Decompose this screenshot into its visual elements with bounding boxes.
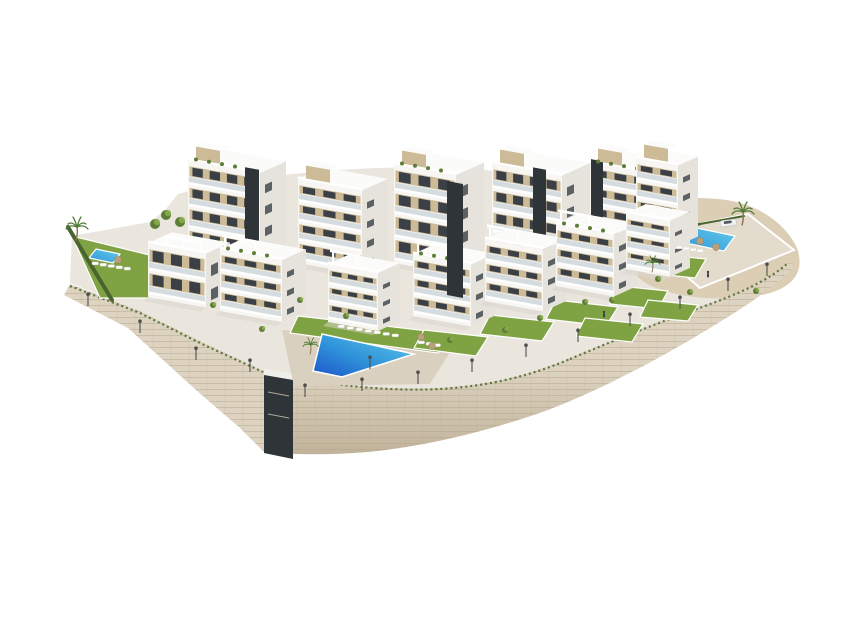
window xyxy=(399,195,411,207)
pedestrian xyxy=(707,271,709,278)
sun-lounger xyxy=(697,249,704,252)
roof-planter xyxy=(233,164,237,168)
sun-lounger xyxy=(347,327,354,330)
roof-planter xyxy=(575,224,579,228)
sun-lounger xyxy=(124,267,131,270)
palm-frond xyxy=(77,226,88,229)
roof-planter xyxy=(400,161,404,165)
parasol-canopy xyxy=(713,244,720,251)
lamp-head xyxy=(369,356,372,359)
roof-planter xyxy=(419,251,423,255)
pergola-post xyxy=(200,242,202,252)
window xyxy=(171,278,182,291)
window xyxy=(513,195,523,205)
lamp-head xyxy=(679,296,682,299)
roof-planter xyxy=(265,253,269,257)
apartment-building xyxy=(143,232,230,311)
window xyxy=(513,217,523,227)
pergola-post xyxy=(165,236,167,246)
window xyxy=(496,214,506,224)
sun-lounger xyxy=(92,262,99,265)
sun-lounger xyxy=(418,341,425,344)
lamp-head xyxy=(139,320,142,323)
apartment-building xyxy=(323,249,400,335)
window xyxy=(399,218,411,230)
apartment-building xyxy=(480,224,567,315)
lamp-head xyxy=(766,263,769,266)
parasol-canopy xyxy=(115,257,122,264)
apartment-building xyxy=(621,204,690,281)
architectural-rendering: Aerial 3D architectural rendering of a m… xyxy=(0,0,850,620)
pedestrian xyxy=(603,311,605,318)
shrub-highlight xyxy=(262,326,266,330)
sun-lounger xyxy=(690,248,697,251)
window xyxy=(189,281,200,294)
lamp-head xyxy=(727,278,730,281)
roof-planter xyxy=(194,157,198,161)
window xyxy=(153,251,164,264)
roof-planter xyxy=(426,166,430,170)
shrub-highlight xyxy=(300,297,304,301)
shrub-highlight xyxy=(690,289,694,293)
tree-highlight xyxy=(179,217,185,223)
roof-planter xyxy=(226,246,230,250)
lamp-head xyxy=(249,359,252,362)
shrub-highlight xyxy=(612,297,616,301)
pedestrian-body xyxy=(603,313,605,318)
window xyxy=(513,174,523,184)
pergola-post xyxy=(224,236,226,248)
pergola-post xyxy=(183,239,185,249)
central-elevator-shaft xyxy=(447,181,463,298)
shrub-highlight xyxy=(756,288,760,292)
pedestrian-head xyxy=(707,271,709,273)
window xyxy=(496,171,506,181)
roof-planter xyxy=(601,228,605,232)
pergola-post xyxy=(356,256,358,268)
lamp-head xyxy=(304,384,307,387)
sun-lounger xyxy=(676,246,683,249)
window xyxy=(419,222,431,234)
window xyxy=(547,180,557,190)
shrub-highlight xyxy=(213,302,217,306)
shrub-highlight xyxy=(450,337,454,341)
lamp-head xyxy=(417,371,420,374)
window xyxy=(419,175,431,187)
roof-planter xyxy=(596,159,600,163)
lamp-head xyxy=(195,347,198,350)
sun-lounger xyxy=(338,325,345,328)
lamp-head xyxy=(87,293,90,296)
window xyxy=(153,275,164,288)
sun-lounger xyxy=(365,330,372,333)
elevator-tower xyxy=(264,371,293,459)
pedestrian-head xyxy=(603,311,605,313)
pedestrian-body xyxy=(707,273,709,278)
shrub-highlight xyxy=(658,276,662,280)
render-canvas: Aerial 3D architectural rendering of a m… xyxy=(0,0,850,620)
pergola-post xyxy=(517,232,519,244)
window xyxy=(171,254,182,267)
pergola-post xyxy=(489,226,491,238)
roof-planter xyxy=(220,162,224,166)
window xyxy=(399,172,411,184)
apartment-building xyxy=(551,209,638,300)
lamp-head xyxy=(471,359,474,362)
roof-planter xyxy=(239,249,243,253)
window xyxy=(496,192,506,202)
window xyxy=(189,257,200,270)
sun-lounger xyxy=(100,263,107,266)
lamp-head xyxy=(629,313,632,316)
parasol-canopy xyxy=(418,334,425,341)
window xyxy=(547,223,557,233)
lamp-head xyxy=(361,378,364,381)
sun-lounger xyxy=(108,265,115,268)
shrub-highlight xyxy=(540,315,544,319)
lamp-head xyxy=(525,344,528,347)
tree-highlight xyxy=(154,219,160,225)
pergola-post xyxy=(560,211,562,223)
roof-planter xyxy=(439,168,443,172)
sun-lounger xyxy=(383,333,390,336)
window xyxy=(399,241,411,253)
roof-planter xyxy=(432,254,436,258)
tree-highlight xyxy=(165,210,171,216)
window xyxy=(419,198,431,210)
sun-lounger xyxy=(374,331,381,334)
roof-planter xyxy=(622,164,626,168)
palm-trunk xyxy=(76,227,77,240)
apartment-building xyxy=(215,234,306,326)
roof-planter xyxy=(588,226,592,230)
roof-planter xyxy=(252,251,256,255)
sun-lounger xyxy=(683,247,690,250)
shrub-highlight xyxy=(585,299,589,303)
roof-planter xyxy=(413,164,417,168)
parasol-canopy xyxy=(429,343,436,350)
sun-lounger xyxy=(356,328,363,331)
shrub-highlight xyxy=(346,313,350,317)
shrub-highlight xyxy=(505,327,509,331)
sun-lounger xyxy=(392,334,399,337)
lamp-head xyxy=(577,329,580,332)
roof-planter xyxy=(609,162,613,166)
window xyxy=(547,201,557,211)
parasol-canopy xyxy=(697,238,704,245)
pergola-post xyxy=(332,251,334,263)
roof-planter xyxy=(207,160,211,164)
pergola-post xyxy=(417,241,419,253)
roof-planter xyxy=(562,221,566,225)
sun-lounger xyxy=(116,266,123,269)
